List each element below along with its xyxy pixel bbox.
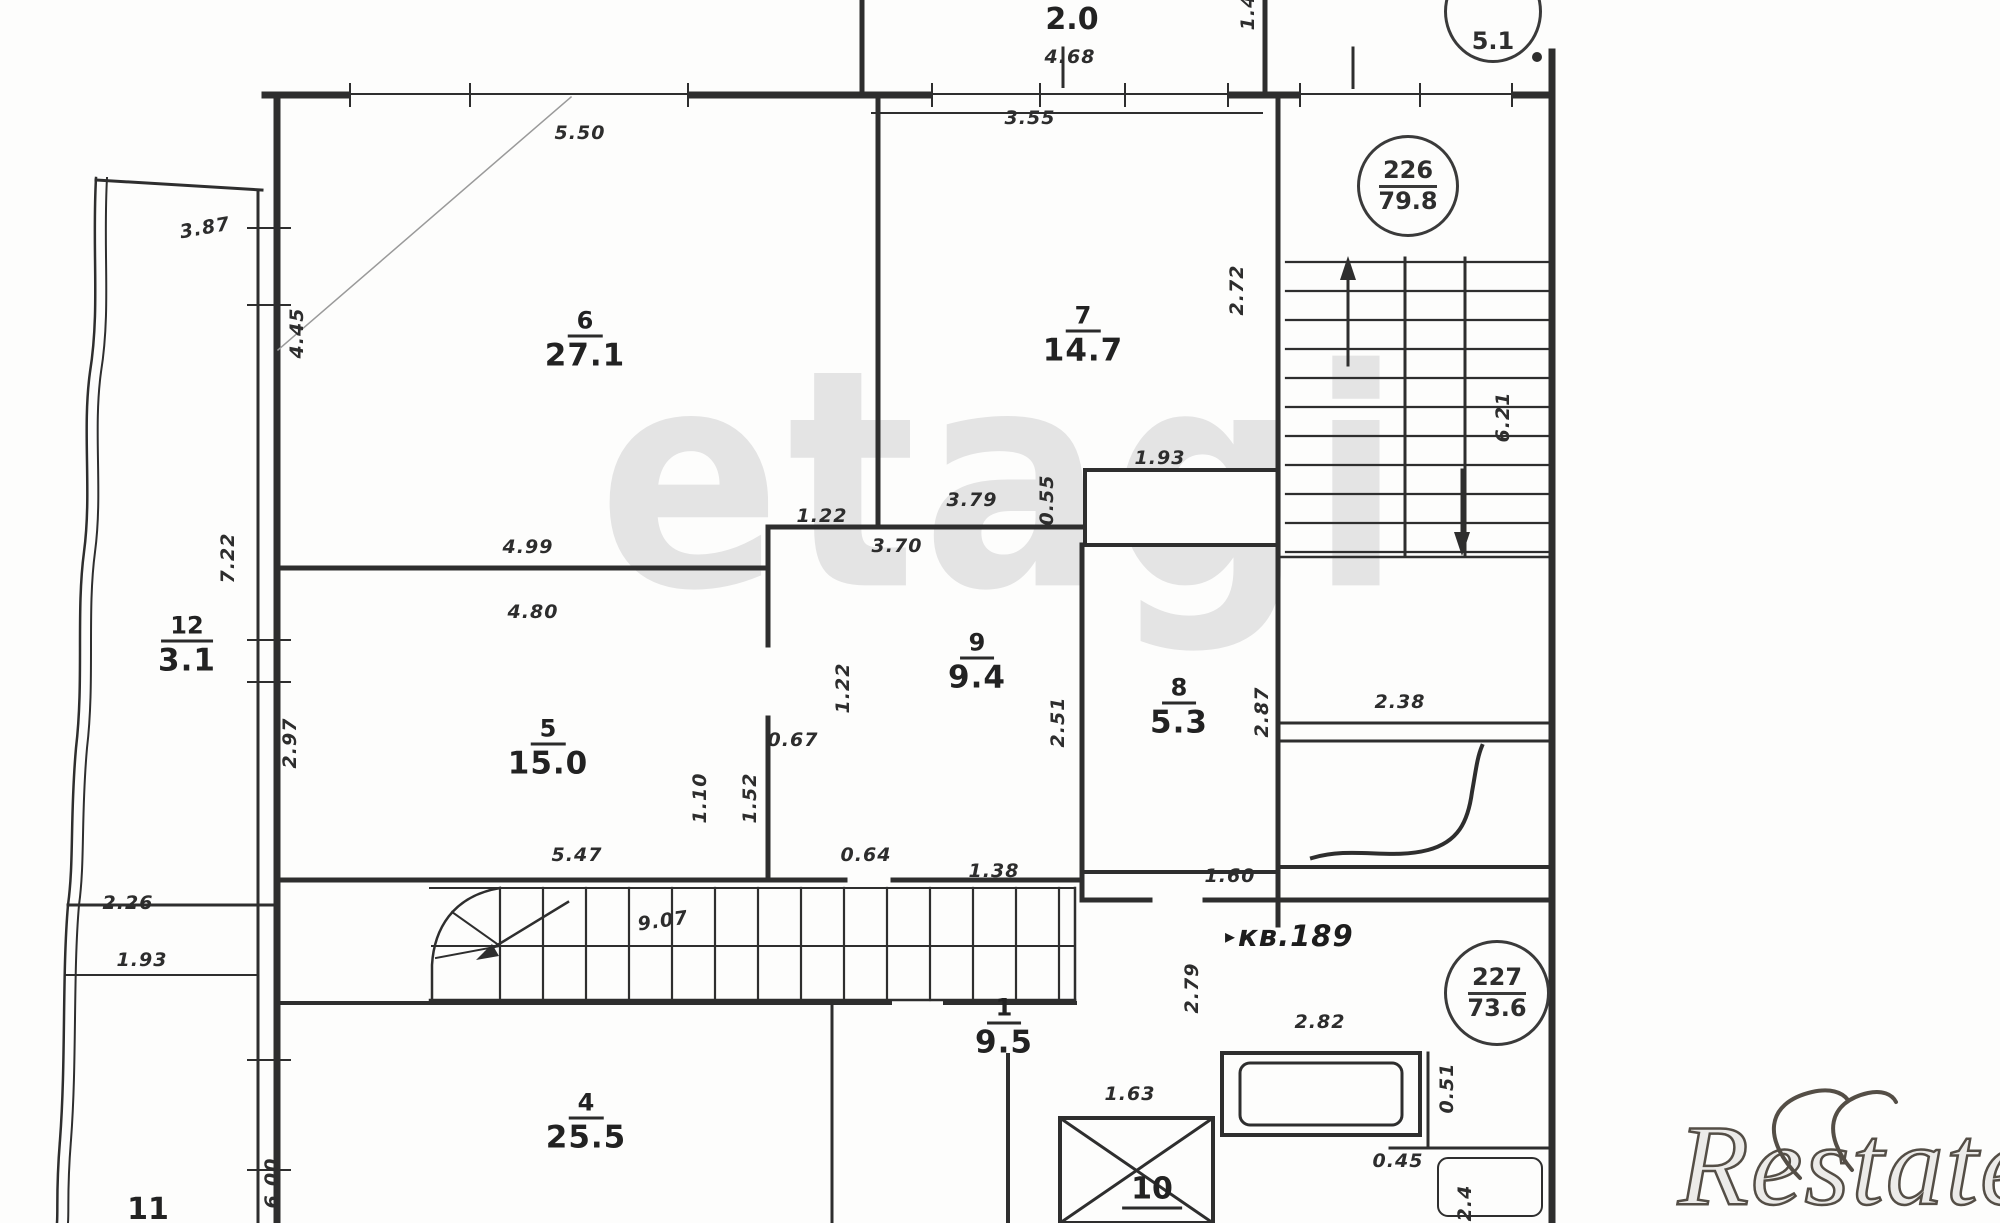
door-arrow-icon: ▸ <box>1225 924 1236 948</box>
dimension-3.79: 3.79 <box>947 489 998 511</box>
dimension-4.99: 4.99 <box>503 536 554 558</box>
dimension-2.82: 2.82 <box>1295 1011 1346 1033</box>
watermark-restate: Restate <box>1658 1070 2000 1223</box>
dimension-3.70: 3.70 <box>872 535 923 557</box>
dimension-2.79: 2.79 <box>1181 963 1203 1014</box>
dimension-2.87: 2.87 <box>1251 687 1273 738</box>
dimension-1.63: 1.63 <box>1105 1083 1156 1105</box>
apartment-stamp-226: 22679.8 <box>1357 135 1459 237</box>
room-label-4: 425.5 <box>546 1091 627 1154</box>
dimension-7.22: 7.22 <box>217 533 239 584</box>
apartment-stamp-227: 22773.6 <box>1444 940 1550 1046</box>
room-label-12: 123.1 <box>158 614 216 677</box>
dimension-2.4: 2.4 <box>1454 1185 1476 1222</box>
dimension-5.50: 5.50 <box>555 122 606 144</box>
apartment-number-text: кв.189 <box>1238 919 1354 953</box>
dimension-2.38: 2.38 <box>1375 691 1426 713</box>
room-label-5: 515.0 <box>508 717 589 780</box>
restate-text: Restate <box>1678 1108 2000 1223</box>
dimension-3.87: 3.87 <box>178 213 232 244</box>
stamp-area: 73.6 <box>1467 995 1526 1021</box>
apartment-stamp-5.1: 5.1 <box>1444 0 1542 63</box>
stamp-number: 5.1 <box>1468 29 1519 55</box>
dimension-1.52: 1.52 <box>739 773 761 824</box>
dimension-1.4: 1.4 <box>1237 0 1259 30</box>
dimension-1.22: 1.22 <box>832 663 854 714</box>
dimension-1.38: 1.38 <box>969 860 1020 882</box>
dimension-0.55: 0.55 <box>1036 475 1058 526</box>
apartment-number-label: ▸ кв.189 <box>1225 919 1354 953</box>
dimension-4.45: 4.45 <box>286 308 308 359</box>
dimension-0.67: 0.67 <box>768 729 819 751</box>
stamp-number: 227 <box>1468 965 1526 994</box>
labels-layer: 627.1714.7123.1515.099.485.319.5425.5101… <box>0 0 2000 1223</box>
room-label-6: 627.1 <box>545 309 626 372</box>
dimension-9.07: 9.07 <box>636 907 689 936</box>
stamp-number: 226 <box>1379 158 1437 187</box>
dimension-1.60: 1.60 <box>1205 865 1256 887</box>
dimension-0.45: 0.45 <box>1373 1150 1424 1172</box>
dimension-0.64: 0.64 <box>841 844 892 866</box>
stamp-area: 79.8 <box>1378 188 1437 214</box>
room-label-11: 11 <box>127 1195 169 1223</box>
dimension-4.68: 4.68 <box>1045 46 1096 68</box>
dimension-1.10: 1.10 <box>689 773 711 824</box>
dimension-2.72: 2.72 <box>1226 265 1248 316</box>
room-label-1: 19.5 <box>975 996 1033 1059</box>
floorplan-canvas: etagi <box>0 0 2000 1223</box>
dimension-2.26: 2.26 <box>103 892 154 914</box>
dimension-1.93: 1.93 <box>117 949 168 971</box>
room-label-2.0: 2.0 <box>1045 5 1098 35</box>
dimension-2.51: 2.51 <box>1047 697 1069 748</box>
dimension-1.93: 1.93 <box>1135 447 1186 469</box>
dimension-5.47: 5.47 <box>552 844 603 866</box>
dimension-6.21: 6.21 <box>1492 392 1514 443</box>
dimension-4.80: 4.80 <box>508 601 559 623</box>
dimension-1.22: 1.22 <box>797 505 848 527</box>
dimension-3.55: 3.55 <box>1005 107 1056 129</box>
room-label-10: 10 <box>1122 1175 1182 1210</box>
room-label-7: 714.7 <box>1043 304 1124 367</box>
room-label-9: 99.4 <box>948 631 1006 694</box>
room-label-8: 85.3 <box>1150 676 1208 739</box>
dimension-0.51: 0.51 <box>1436 1063 1458 1114</box>
dimension-6.00: 6.00 <box>261 1158 283 1209</box>
dimension-2.97: 2.97 <box>279 718 301 769</box>
